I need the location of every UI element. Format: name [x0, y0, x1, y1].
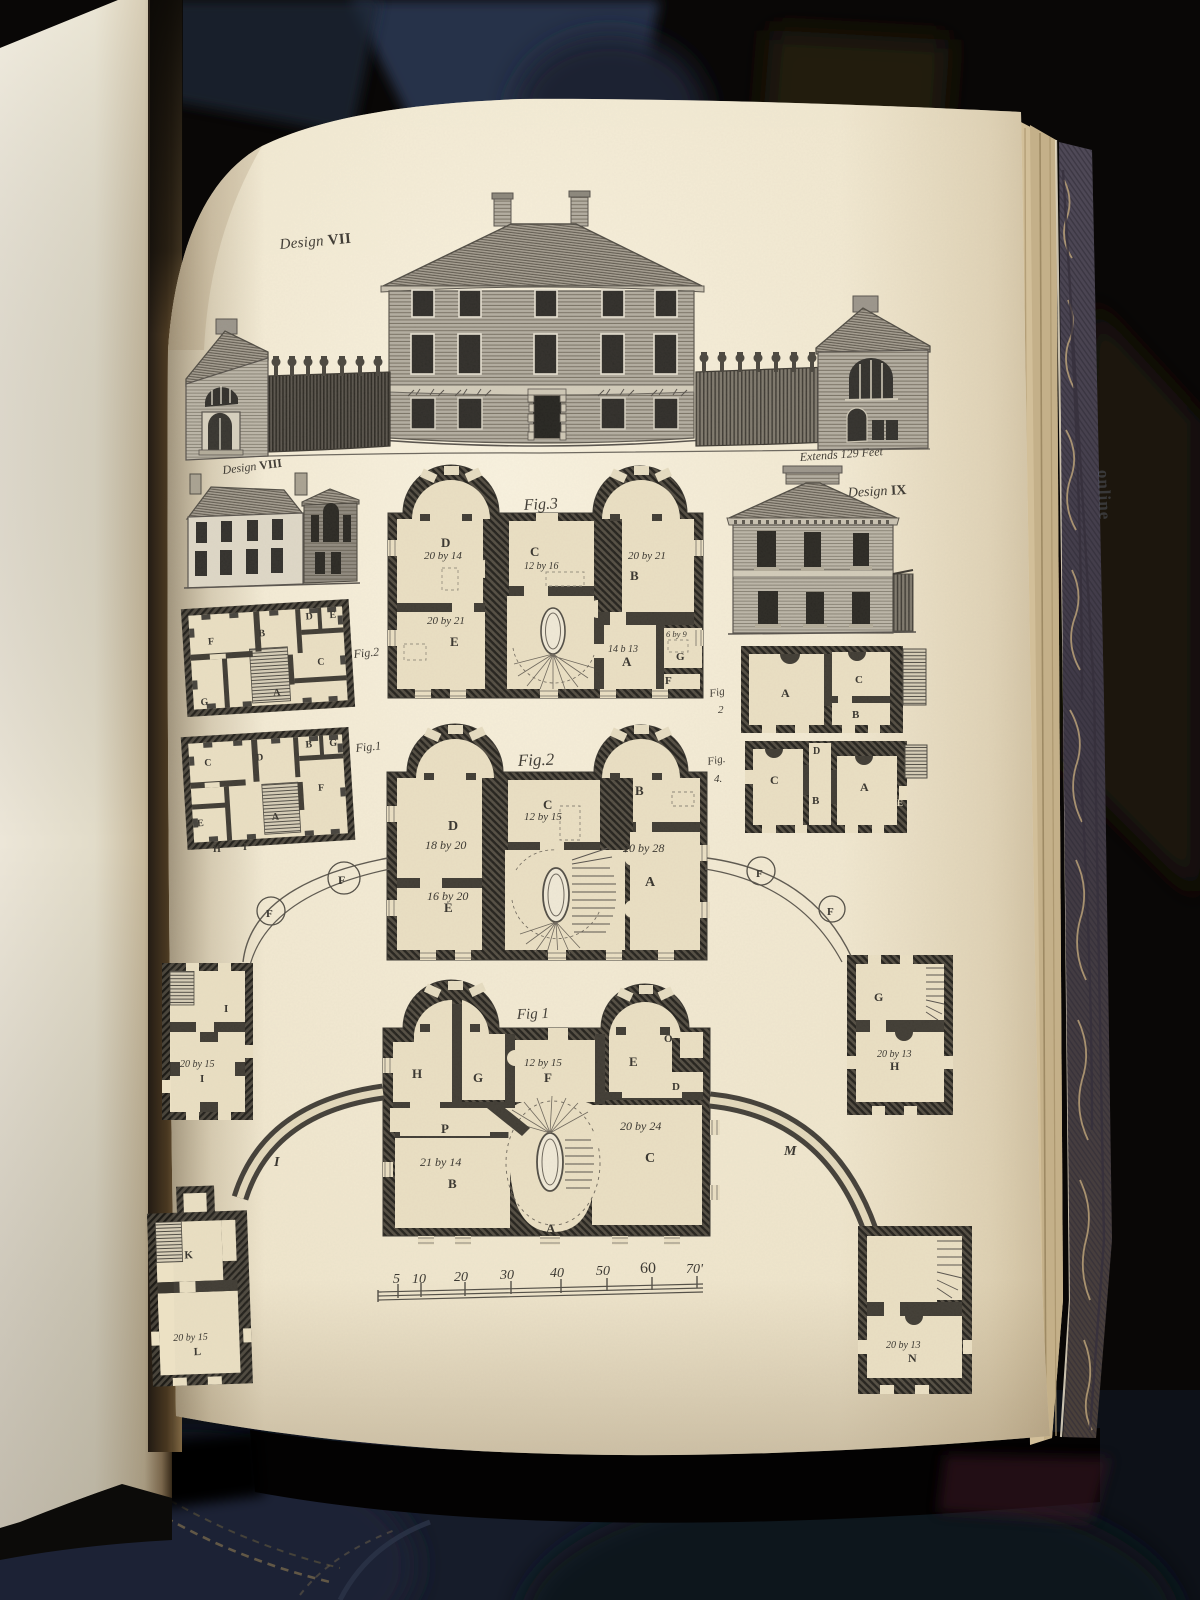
svg-text:online: online	[1094, 469, 1115, 520]
